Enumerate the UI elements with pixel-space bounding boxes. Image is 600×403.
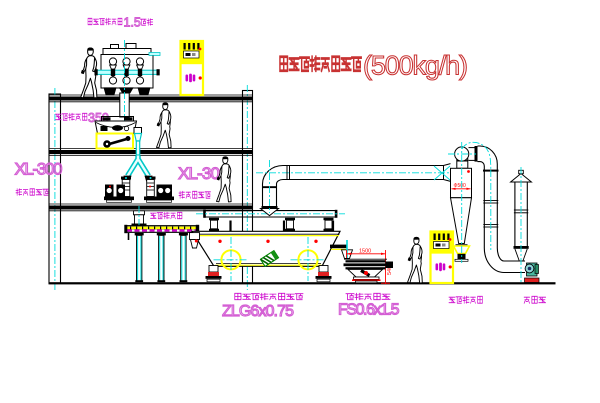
svg-text:FS0.6x1.5: FS0.6x1.5 xyxy=(338,302,400,319)
svg-text:XL-300: XL-300 xyxy=(15,160,63,179)
svg-text:ZLG6x0.75: ZLG6x0.75 xyxy=(222,303,294,320)
svg-text:1500: 1500 xyxy=(359,249,371,255)
svg-text:(500kg/h): (500kg/h) xyxy=(363,51,468,81)
svg-text:1.5: 1.5 xyxy=(124,16,141,30)
